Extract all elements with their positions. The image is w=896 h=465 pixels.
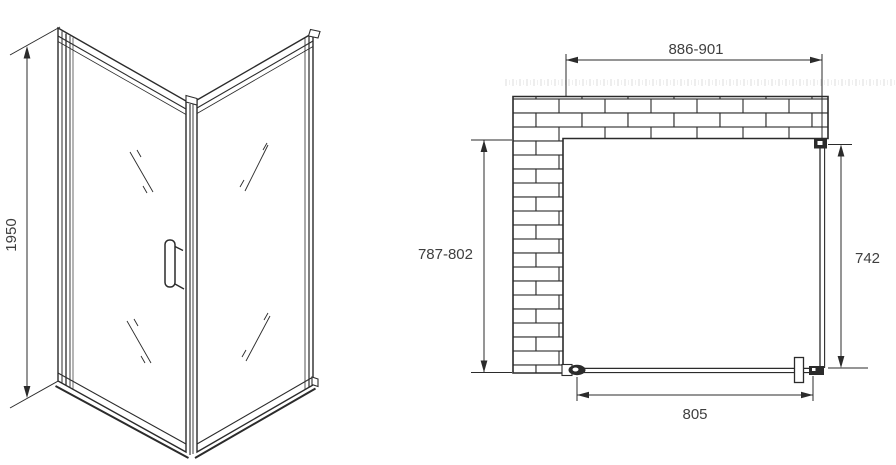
technical-drawing: 1950 bbox=[0, 0, 896, 465]
arrow-down-icon bbox=[24, 386, 31, 398]
dim-label-height: 1950 bbox=[3, 218, 20, 251]
plan-side-panel bbox=[814, 139, 827, 369]
arrow-down-icon bbox=[838, 356, 845, 368]
dim-label-left-depth: 787-802 bbox=[418, 246, 473, 263]
corner-post bbox=[186, 96, 197, 456]
corner-post-cap bbox=[186, 96, 197, 106]
side-panel bbox=[195, 30, 320, 459]
drawing-canvas: 1950 bbox=[0, 0, 896, 465]
plan-door bbox=[562, 358, 824, 383]
dim-height-1950: 1950 bbox=[3, 27, 60, 408]
arrow-up-icon bbox=[481, 140, 488, 152]
wall-hatch-strip bbox=[505, 78, 896, 89]
arrow-right-icon bbox=[810, 57, 822, 63]
dim-depth-787-802: 787-802 bbox=[418, 140, 512, 373]
dim-panel-742: 742 bbox=[828, 145, 880, 369]
plan-door-handle bbox=[795, 358, 804, 383]
dim-label-panel: 742 bbox=[855, 250, 880, 267]
arrow-up-icon bbox=[838, 145, 845, 157]
brick-wall bbox=[513, 97, 828, 374]
dim-label-door-width: 805 bbox=[682, 406, 707, 423]
arrow-left-icon bbox=[577, 392, 589, 398]
arrow-left-icon bbox=[566, 57, 578, 63]
plan-view: 886-901 787-802 742 805 bbox=[418, 41, 896, 423]
post-cap bbox=[309, 30, 321, 39]
arrow-up-icon bbox=[24, 46, 31, 59]
post-foot bbox=[312, 377, 318, 387]
corner-bracket bbox=[809, 366, 824, 375]
dim-label-top-width: 886-901 bbox=[668, 41, 723, 58]
front-view: 1950 bbox=[3, 27, 320, 458]
arrow-right-icon bbox=[801, 392, 813, 398]
dim-door-805: 805 bbox=[577, 376, 813, 423]
arrow-down-icon bbox=[481, 361, 488, 373]
